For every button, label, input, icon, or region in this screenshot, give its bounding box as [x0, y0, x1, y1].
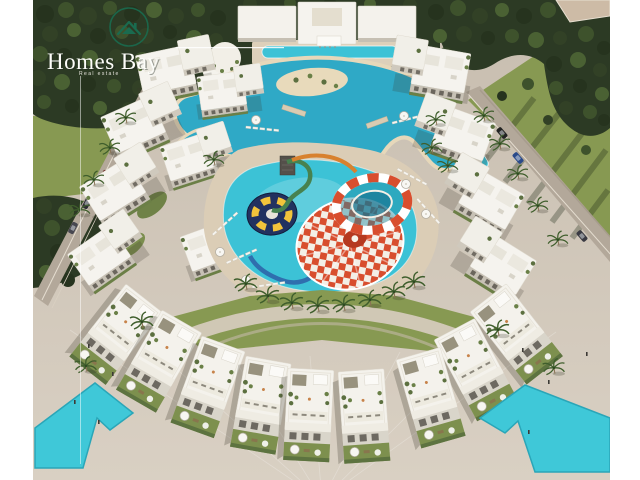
page-margin-left	[0, 0, 33, 480]
beach-umbrella	[400, 112, 409, 121]
render-canvas: Homes Bay Homes Bay Real estate	[0, 0, 640, 480]
logo-tagline: Real estate	[79, 71, 120, 77]
pool-umbrella	[422, 210, 431, 219]
pool-umbrella	[216, 248, 225, 257]
rule-horizontal	[176, 47, 284, 48]
rule-vertical	[80, 76, 81, 464]
townhouse	[277, 368, 334, 463]
beach-umbrella	[252, 116, 261, 125]
page-margin-right	[610, 0, 640, 480]
pool-umbrella	[402, 180, 411, 189]
resort-aerial-render: Homes Bay Homes Bay Real estate	[0, 0, 640, 480]
townhouse	[332, 369, 390, 464]
